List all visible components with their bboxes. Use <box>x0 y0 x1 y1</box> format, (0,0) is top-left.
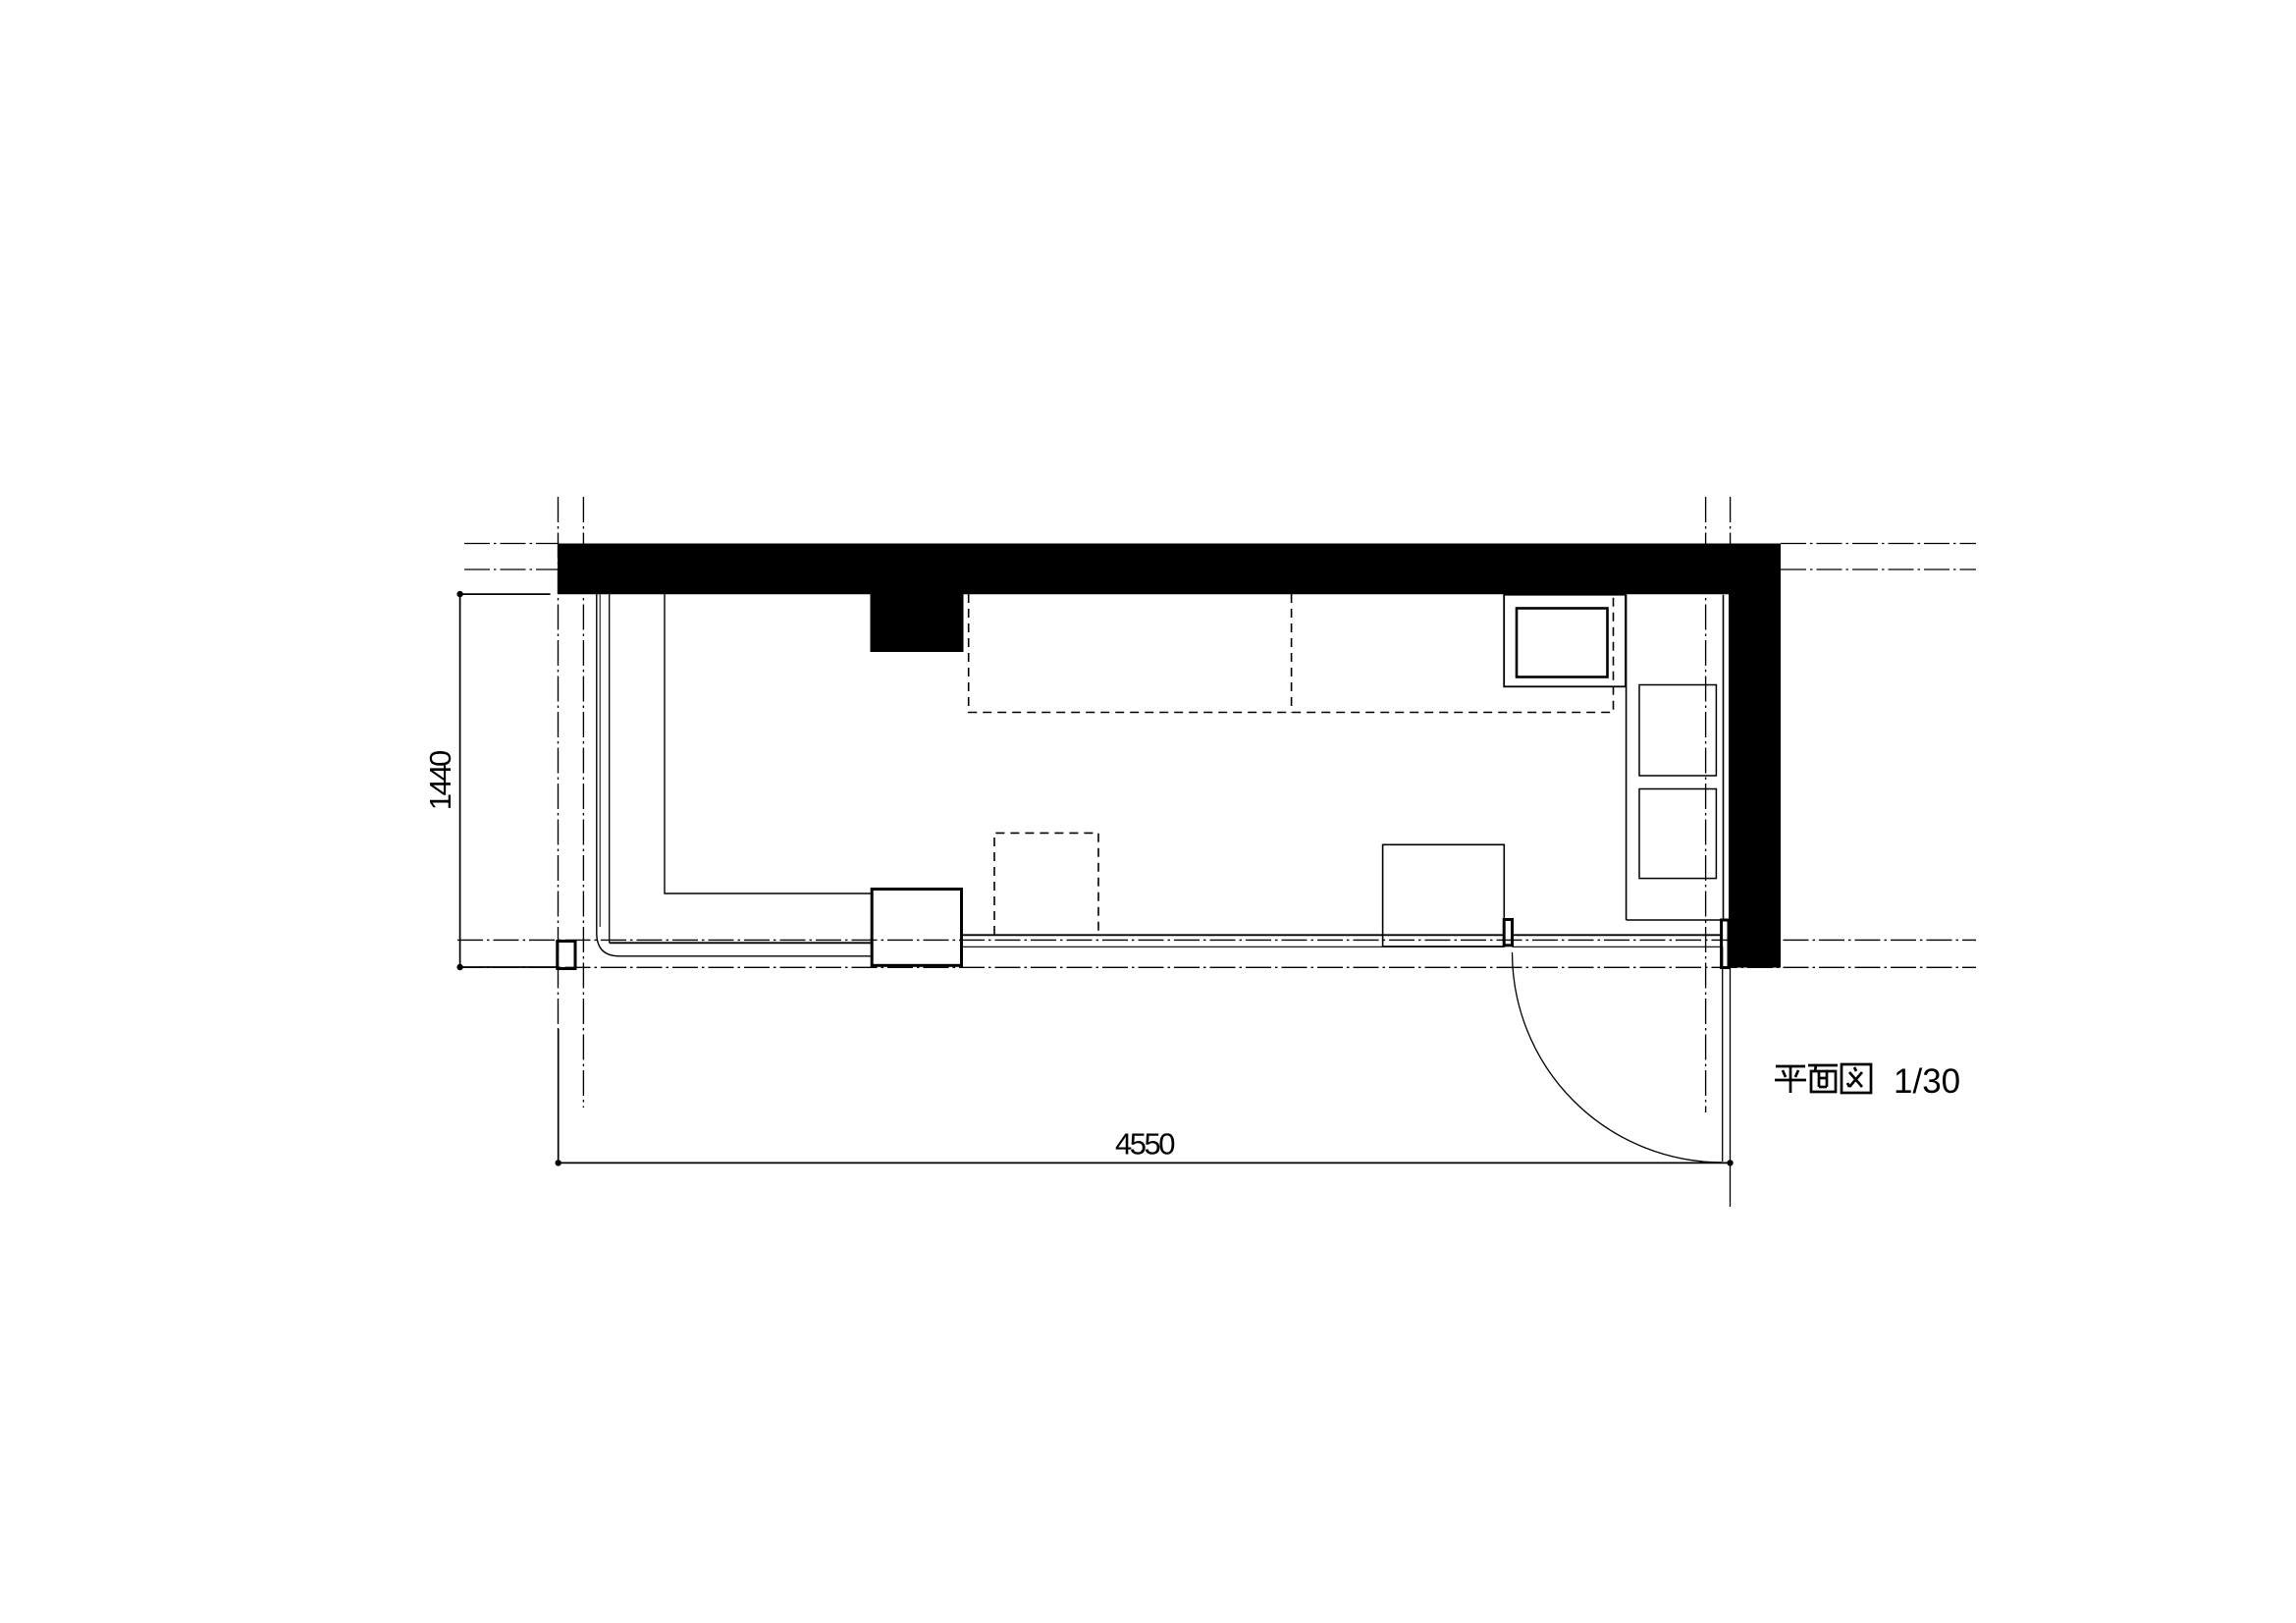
svg-text:1/30: 1/30 <box>1894 1062 1960 1101</box>
svg-text:1440: 1440 <box>423 750 457 810</box>
svg-text:4550: 4550 <box>1115 1127 1175 1162</box>
